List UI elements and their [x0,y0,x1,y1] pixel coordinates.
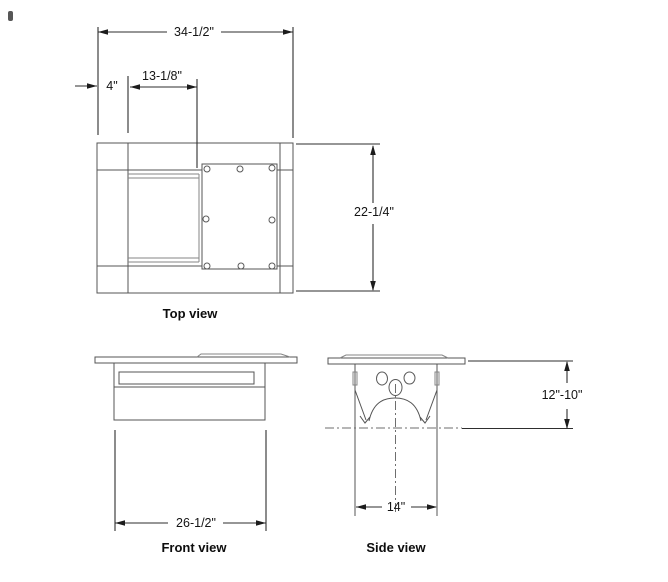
dimension-side-height: 12"-10" [462,361,582,429]
technical-drawing: Top view 34-1/2" 4" 13-1/8" 22-1/4" [0,0,668,582]
dimension-side-width: 14" [356,500,437,514]
front-view-label: Front view [161,540,227,555]
front-slot [119,372,254,384]
front-width-text: 26-1/2" [176,516,216,530]
side-view: Side view [325,355,465,555]
dimension-left-offset: 4" [75,76,128,133]
top-view-label: Top view [163,306,219,321]
scan-artifact [8,11,13,21]
left-bracket-hole [377,372,388,385]
overall-width-text: 34-1/2" [174,25,214,39]
inner-slide-box [128,174,199,262]
mounting-plate [202,164,277,269]
right-bracket-hole [404,372,415,384]
left-taper-leg [355,390,366,420]
top-view: Top view [97,143,293,321]
dimension-depth: 22-1/4" [296,144,394,291]
right-foot [420,416,430,423]
left-offset-text: 4" [106,79,117,93]
dimension-inner-width: 13-1/8" [130,69,197,168]
dimension-front-width: 26-1/2" [115,430,266,531]
front-countertop [95,357,297,363]
depth-text: 22-1/4" [354,205,394,219]
side-view-label: Side view [366,540,426,555]
dimension-overall-width: 34-1/2" [98,25,293,138]
inner-width-text: 13-1/8" [142,69,182,83]
right-taper-leg [426,390,437,420]
side-width-text: 14" [387,500,405,514]
side-height-text: 12"-10" [542,388,583,402]
side-countertop [328,358,465,364]
spec-sheet: Top view 34-1/2" 4" 13-1/8" 22-1/4" [0,0,668,582]
